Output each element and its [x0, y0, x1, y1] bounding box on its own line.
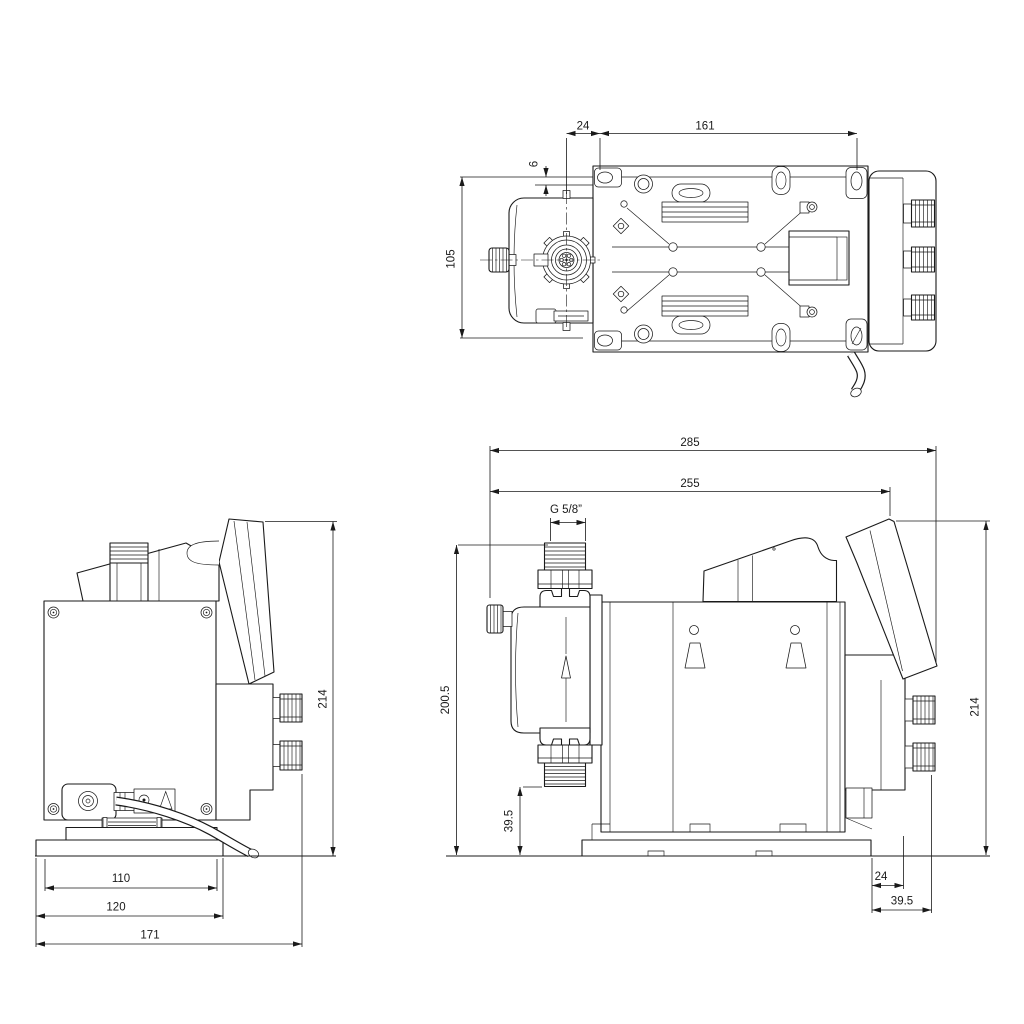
connector-knob — [273, 694, 302, 722]
mounting-plate — [593, 166, 868, 352]
connector-knob — [904, 200, 935, 227]
dim-label-6: 6 — [529, 161, 541, 167]
connector-knob — [273, 741, 302, 770]
corner-screw — [201, 607, 212, 618]
back-view: 214 110 120 171 — [35, 519, 337, 947]
connector-knob — [904, 247, 935, 272]
corner-screw — [48, 607, 59, 618]
dim-label-171: 171 — [140, 930, 159, 942]
dim-label-255: 255 — [680, 478, 699, 490]
dim-label-105: 105 — [446, 249, 458, 268]
dim-label-thread: G 5/8” — [550, 504, 582, 516]
dim-label-200-5: 200.5 — [440, 686, 452, 715]
corner-screw — [48, 804, 59, 815]
dim-label-161: 161 — [695, 121, 714, 133]
side-housing-back — [216, 684, 302, 820]
mains-cable-top — [849, 354, 862, 398]
connector-knob — [904, 295, 935, 320]
dim-label-39-5-bottom: 39.5 — [891, 896, 913, 908]
dim-label-110: 110 — [112, 873, 130, 885]
side-view: 285 255 G 5/8” 200.5 39.5 214 24 39.5 — [440, 437, 990, 913]
dim-label-120: 120 — [106, 902, 125, 914]
dim-label-214-side: 214 — [970, 697, 982, 717]
pump-head-top — [480, 191, 601, 331]
dim-label-214-back: 214 — [318, 689, 330, 709]
top-view: 24 161 6 105 — [446, 121, 937, 399]
dim-label-39-5-left: 39.5 — [504, 810, 516, 832]
connector-knob — [905, 696, 935, 724]
pump-body-side — [601, 602, 935, 832]
drawing-canvas: 24 161 6 105 — [0, 0, 1024, 1024]
dim-label-24: 24 — [577, 121, 590, 133]
dosing-head-side — [487, 543, 602, 787]
dim-label-24-side: 24 — [875, 871, 888, 883]
corner-screw — [201, 804, 212, 815]
connector-knob — [905, 743, 935, 771]
bleed-knob-side — [487, 605, 503, 633]
control-end-cap-top — [869, 171, 936, 351]
discharge-fitting-back — [110, 543, 148, 563]
drawing-page: 24 161 6 105 — [0, 0, 1024, 1024]
dim-label-285: 285 — [680, 437, 699, 449]
